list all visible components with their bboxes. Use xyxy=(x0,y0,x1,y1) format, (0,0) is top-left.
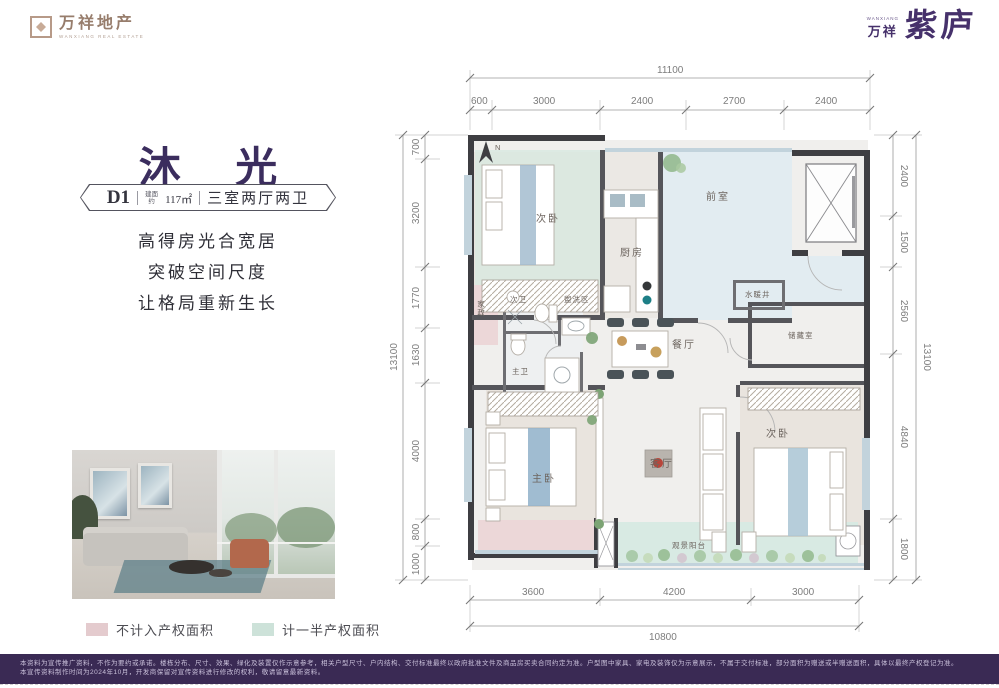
badge-divider xyxy=(137,191,138,205)
project-logo: WANXIANG 万祥 紫庐 xyxy=(867,10,977,40)
room-label-master: 主卧 xyxy=(532,472,556,485)
svg-text:2700: 2700 xyxy=(723,96,746,107)
svg-text:700: 700 xyxy=(411,138,422,155)
area-prefix: 建面 约 xyxy=(145,191,158,205)
badge-divider xyxy=(199,191,200,205)
project-logo-prefix: 万祥 xyxy=(868,21,898,40)
svg-text:800: 800 xyxy=(411,523,422,540)
room-label-balcony: 观景阳台 xyxy=(672,540,706,550)
room-label-lobby: 前室 xyxy=(706,190,730,203)
svg-text:3600: 3600 xyxy=(522,587,545,598)
legend-item-no-area: 不计入产权面积 xyxy=(86,620,214,639)
interior-photo xyxy=(72,450,335,599)
slogan-line: 高得房光合宽居 xyxy=(80,226,336,257)
area-legend: 不计入产权面积 计一半产权面积 xyxy=(86,620,380,639)
brand-name-en: WANXIANG REAL ESTATE xyxy=(59,34,144,39)
brand-mark-icon xyxy=(30,16,52,38)
photo-artwork xyxy=(138,463,172,508)
room-label-bath-second: 次卫 xyxy=(510,294,527,304)
tint-master-strip xyxy=(478,520,600,553)
room-label-storage: 储藏室 xyxy=(788,330,814,340)
svg-text:4000: 4000 xyxy=(411,439,422,462)
svg-text:4200: 4200 xyxy=(663,587,686,598)
disclaimer-line: 本宣传资料制作时间为2024年10月，开发商保留对宣传资料进行修改的权利，敬请留… xyxy=(20,668,999,677)
svg-text:3000: 3000 xyxy=(533,96,556,107)
svg-text:1000: 1000 xyxy=(411,552,422,575)
unit-code: D1 xyxy=(107,187,130,209)
project-logo-name: 紫庐 xyxy=(904,10,978,40)
svg-text:1800: 1800 xyxy=(898,538,909,561)
unit-badge: D1 建面 约 117㎡ 三室两厅两卫 xyxy=(80,184,336,211)
room-label-living: 客厅 xyxy=(650,457,674,470)
svg-text:3200: 3200 xyxy=(411,201,422,224)
svg-text:10800: 10800 xyxy=(649,632,677,643)
room-label-dining: 餐厅 xyxy=(672,338,696,351)
tint-lobby xyxy=(662,150,792,320)
photo-side-table xyxy=(209,569,233,576)
svg-text:2400: 2400 xyxy=(815,96,838,107)
unit-slogans: 高得房光合宽居 突破空间尺度 让格局重新生长 xyxy=(80,226,336,319)
svg-text:4840: 4840 xyxy=(898,426,909,449)
room-label-bedroom-right: 次卧 xyxy=(766,427,790,440)
room-label-kitchen: 厨房 xyxy=(620,246,644,259)
legend-label: 计一半产权面积 xyxy=(282,620,380,639)
photo-coffee-table xyxy=(169,560,214,573)
unit-layout: 三室两厅两卫 xyxy=(207,187,309,208)
floor-plan: N 次卧 厨房 前室 水暖井 储藏室 餐厅 盥洗区 次卫 主卫 家政 客厅 主卧… xyxy=(385,58,950,653)
svg-text:2400: 2400 xyxy=(898,165,909,188)
svg-text:1630: 1630 xyxy=(411,343,422,366)
svg-text:N: N xyxy=(495,143,501,152)
legend-item-half-area: 计一半产权面积 xyxy=(252,620,380,639)
room-label-shaft: 水暖井 xyxy=(745,289,771,299)
slogan-line: 让格局重新生长 xyxy=(80,288,336,319)
svg-text:600: 600 xyxy=(471,96,488,107)
legend-swatch xyxy=(252,623,274,636)
svg-text:2560: 2560 xyxy=(898,300,909,323)
unit-area: 117㎡ xyxy=(165,187,192,209)
slogan-line: 突破空间尺度 xyxy=(80,257,336,288)
svg-text:11100: 11100 xyxy=(657,65,684,76)
svg-text:1500: 1500 xyxy=(898,231,909,254)
disclaimer-bar: 本资料为宣传推广资料，不作为要约或承诺。楼栋分布、尺寸、效果、绿化及装置仅作示意… xyxy=(0,654,999,684)
elevator xyxy=(806,164,856,242)
svg-text:2400: 2400 xyxy=(631,96,654,107)
svg-text:13100: 13100 xyxy=(389,343,400,371)
brand-logo-left: 万祥地产 WANXIANG REAL ESTATE xyxy=(30,16,144,39)
legend-label: 不计入产权面积 xyxy=(116,620,214,639)
legend-swatch xyxy=(86,623,108,636)
svg-text:1770: 1770 xyxy=(411,286,422,309)
brand-name: 万祥地产 xyxy=(59,16,144,32)
photo-armchair xyxy=(230,539,269,567)
svg-text:13100: 13100 xyxy=(921,343,932,371)
room-label-wash: 盥洗区 xyxy=(564,294,590,304)
room-label-bedroom-top: 次卧 xyxy=(536,212,560,225)
room-label-bath-master: 主卫 xyxy=(512,366,529,376)
disclaimer-line: 本资料为宣传推广资料，不作为要约或承诺。楼栋分布、尺寸、效果、绿化及装置仅作示意… xyxy=(20,659,999,668)
footer-strip xyxy=(0,684,999,688)
room-label-housekeeping: 家政 xyxy=(476,299,485,318)
svg-text:3000: 3000 xyxy=(792,587,815,598)
